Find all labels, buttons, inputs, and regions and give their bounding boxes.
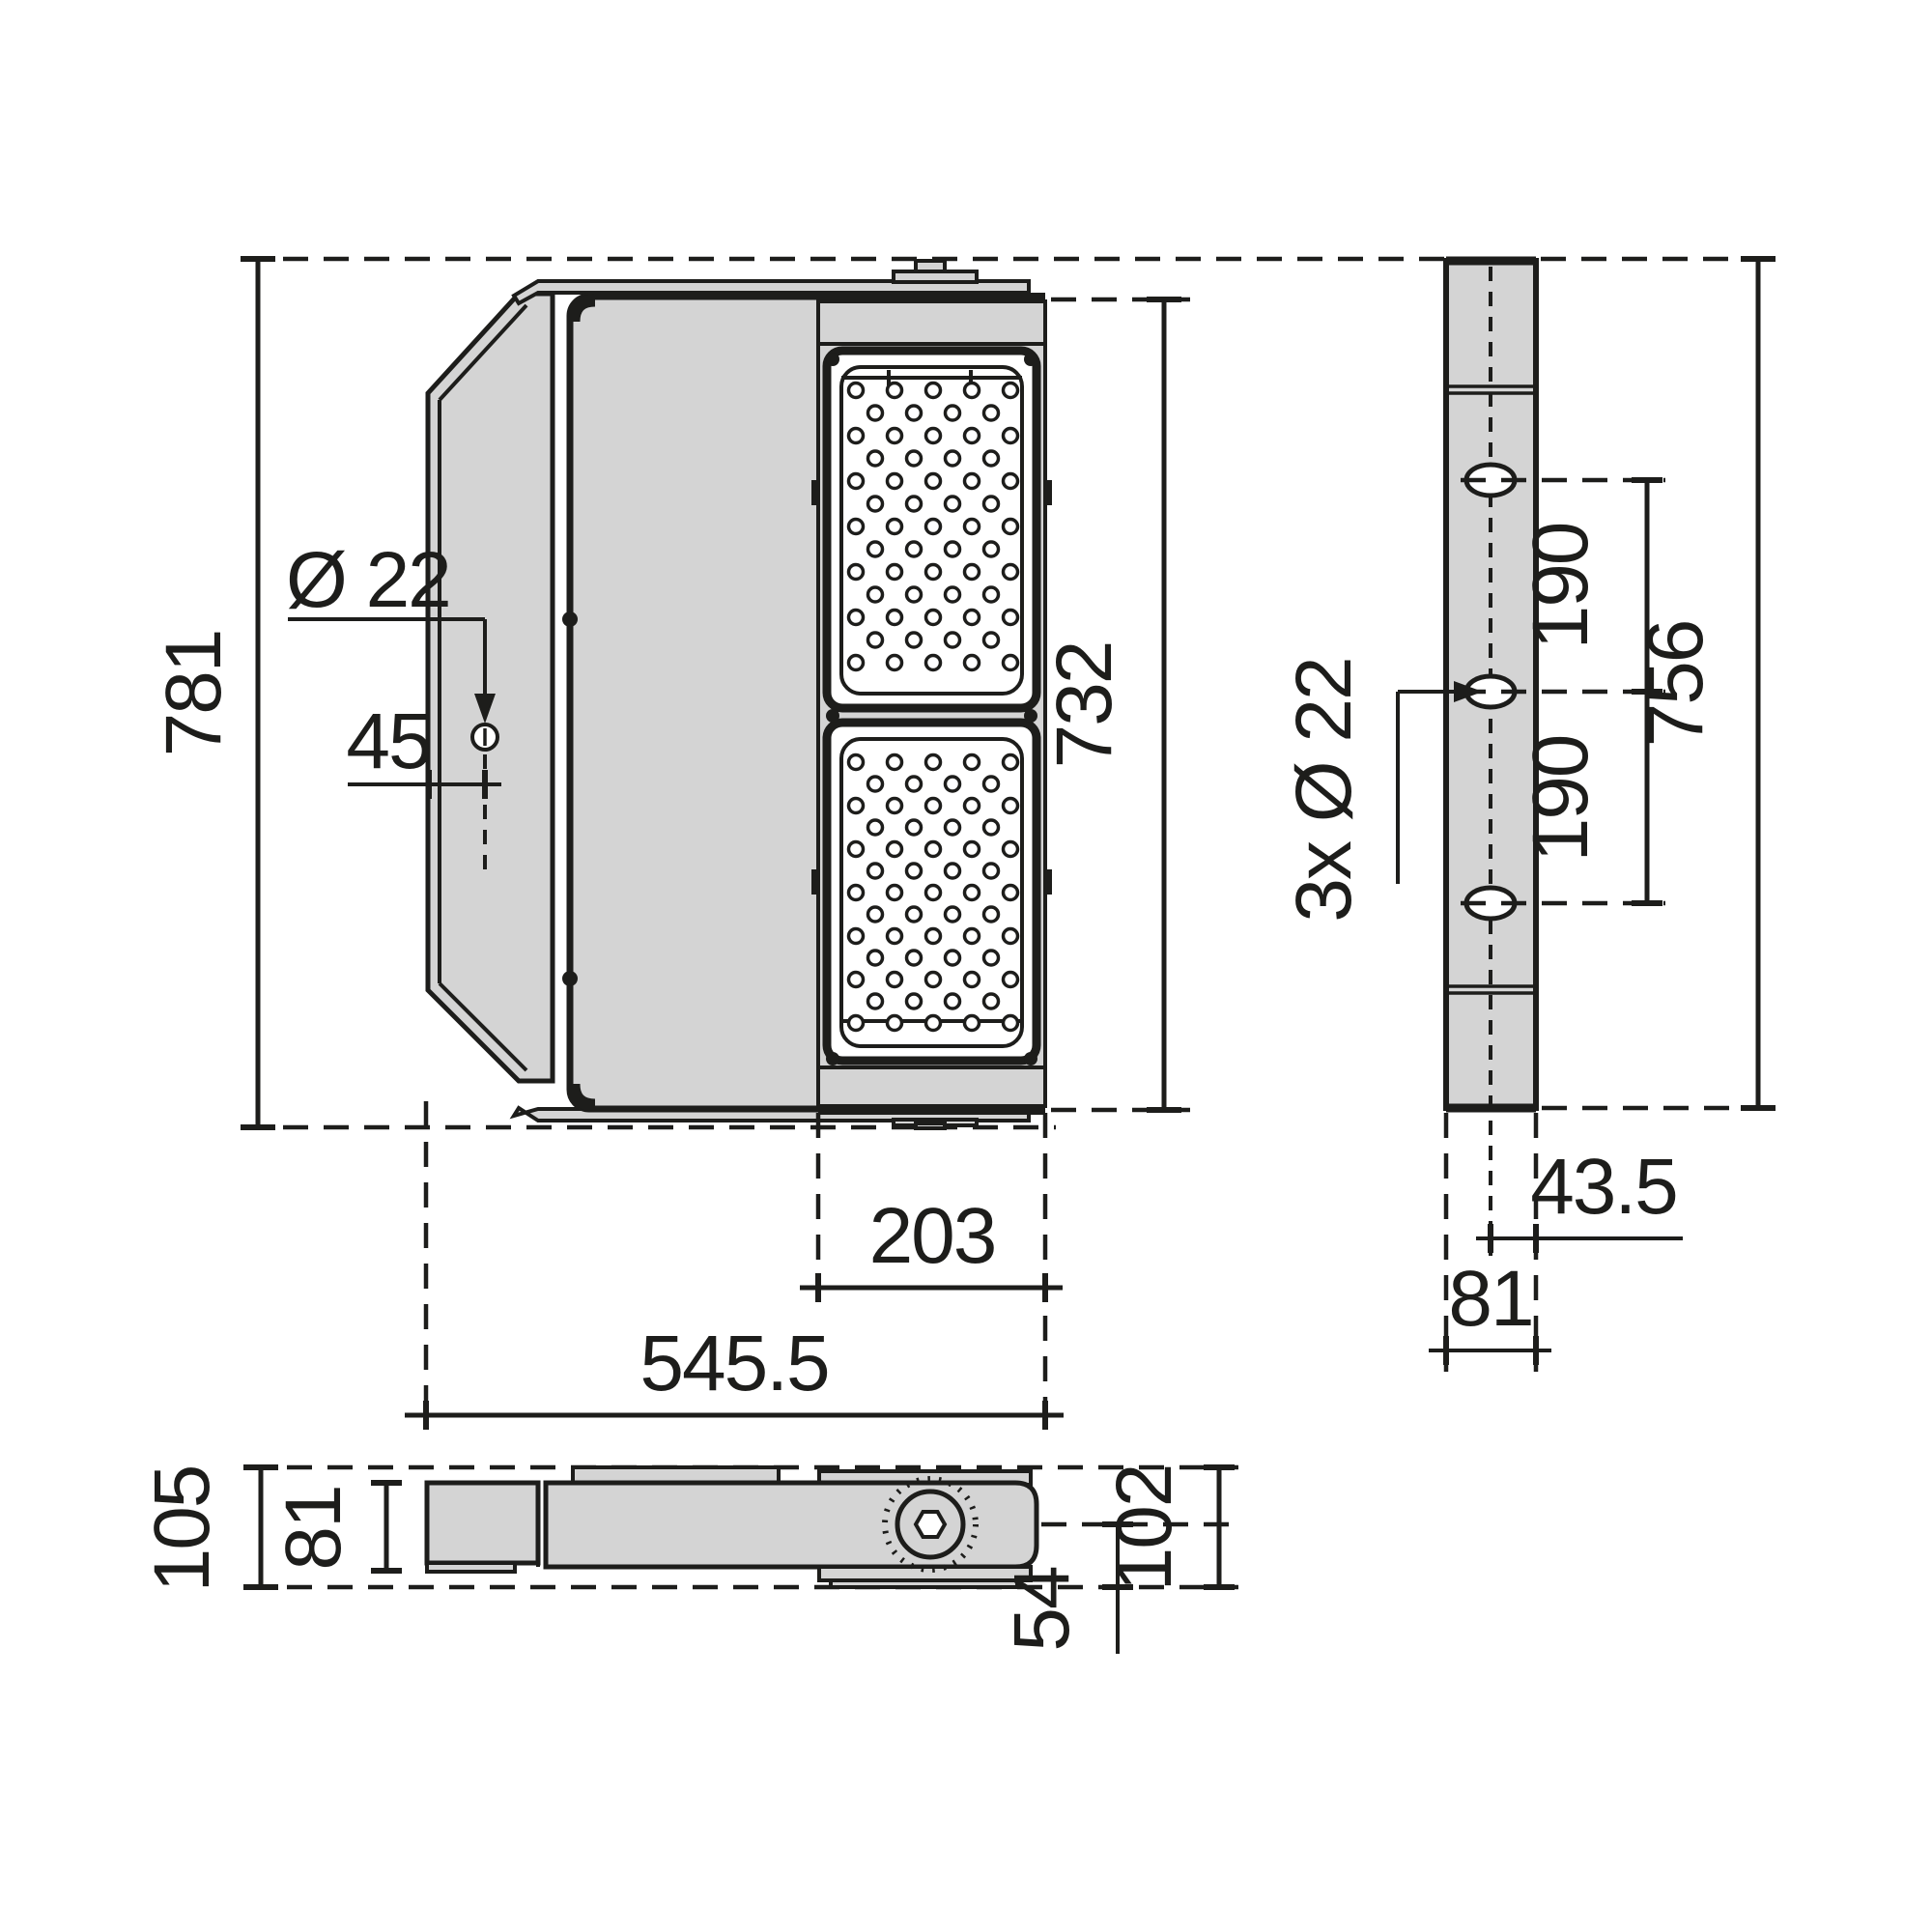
led-hole — [1004, 474, 1018, 489]
led-screw-bl — [826, 1052, 839, 1065]
led-hole — [907, 907, 922, 922]
led-hole — [965, 799, 980, 813]
frame-lug-l1 — [811, 480, 820, 505]
led-hole — [984, 907, 999, 922]
led-hole — [965, 842, 980, 857]
led-hole — [984, 994, 999, 1009]
led-hole — [984, 820, 999, 835]
led-hole — [849, 429, 864, 443]
led-hole — [849, 842, 864, 857]
led-hole — [888, 384, 902, 398]
led-hole — [849, 656, 864, 670]
led-hole — [1004, 1016, 1018, 1031]
led-hole — [868, 907, 883, 922]
led-hole — [907, 777, 922, 791]
led-hole — [946, 633, 960, 647]
drawing-page: 781 732 Ø 22 45 — [0, 0, 1932, 1932]
led-hole — [926, 429, 941, 443]
led-hole — [907, 864, 922, 878]
led-hole — [946, 587, 960, 602]
led-hole — [849, 755, 864, 770]
led-hole — [868, 951, 883, 965]
led-hole — [926, 474, 941, 489]
led-hole — [1004, 929, 1018, 944]
led-hole — [849, 474, 864, 489]
led-hole — [926, 886, 941, 900]
led-hole — [946, 907, 960, 922]
led-hole — [868, 542, 883, 556]
led-screw-tr — [1024, 353, 1037, 366]
led-hole — [868, 497, 883, 511]
led-hole — [907, 542, 922, 556]
led-hole — [926, 656, 941, 670]
dim-label-190-bottom: 190 — [1517, 736, 1605, 863]
led-hole — [907, 633, 922, 647]
top-tab-small — [916, 261, 945, 271]
led-hole — [965, 755, 980, 770]
led-hole — [849, 384, 864, 398]
led-hole — [984, 542, 999, 556]
panel-latch-left-lower — [562, 971, 578, 986]
led-hole — [888, 474, 902, 489]
led-hole — [907, 994, 922, 1009]
led-hole — [926, 929, 941, 944]
led-hole — [965, 474, 980, 489]
label-3x-hole-dia: 3x Ø 22 — [1280, 658, 1368, 922]
led-hole — [984, 451, 999, 466]
led-hole — [946, 497, 960, 511]
led-hole — [849, 799, 864, 813]
body-left-lip — [427, 1563, 515, 1572]
led-hole — [965, 929, 980, 944]
dim-label-81-top: 81 — [270, 1486, 357, 1570]
led-hole — [946, 777, 960, 791]
led-hole — [1004, 656, 1018, 670]
led-hole — [868, 777, 883, 791]
dim-label-203: 203 — [869, 1192, 996, 1280]
dim-label-102: 102 — [1100, 1465, 1188, 1592]
led-hole — [907, 497, 922, 511]
led-hole — [888, 799, 902, 813]
led-hole — [946, 542, 960, 556]
hinge-bottom-lip — [831, 1580, 1017, 1587]
led-hole — [984, 406, 999, 420]
technical-drawing: 781 732 Ø 22 45 — [0, 0, 1932, 1932]
led-hole — [888, 520, 902, 534]
led-hole — [907, 951, 922, 965]
led-hole — [888, 886, 902, 900]
led-hole — [926, 384, 941, 398]
dim-label-756: 756 — [1632, 621, 1719, 748]
led-hole — [965, 520, 980, 534]
led-hole — [1004, 565, 1018, 580]
dim-module-width: 203 — [800, 1113, 1063, 1430]
led-hole — [946, 994, 960, 1009]
led-hole — [907, 587, 922, 602]
dim-label-781: 781 — [150, 631, 238, 757]
led-hole — [888, 973, 902, 987]
led-hole — [984, 951, 999, 965]
label-hole-dia: Ø 22 — [286, 536, 450, 624]
led-hole — [984, 864, 999, 878]
led-hole — [965, 656, 980, 670]
led-hole — [888, 842, 902, 857]
dim-top-body-depth: 81 — [270, 1483, 402, 1571]
led-hole — [946, 864, 960, 878]
led-hole — [849, 929, 864, 944]
dim-label-81-side: 81 — [1448, 1255, 1532, 1343]
led-hole — [888, 755, 902, 770]
dim-side-bottom: 43.5 81 — [1429, 1113, 1683, 1372]
led-hole — [946, 951, 960, 965]
led-hole — [888, 565, 902, 580]
dim-side-height: 756 — [1542, 259, 1782, 1108]
led-hole — [849, 1016, 864, 1031]
led-hole — [965, 973, 980, 987]
led-hole — [1004, 611, 1018, 625]
led-hole — [965, 429, 980, 443]
led-hole — [926, 799, 941, 813]
dim-pivot-height: 102 — [1100, 1465, 1235, 1592]
dim-label-190-top: 190 — [1517, 524, 1605, 650]
dim-front-height: 781 — [150, 259, 275, 1127]
led-hole — [926, 755, 941, 770]
frame-lug-r1 — [1043, 480, 1052, 505]
led-hole — [888, 429, 902, 443]
led-hole — [888, 1016, 902, 1031]
hinge-hex-bolt — [916, 1512, 945, 1537]
led-hole — [926, 565, 941, 580]
led-hole — [888, 929, 902, 944]
dim-label-105: 105 — [138, 1466, 226, 1593]
led-hole — [849, 886, 864, 900]
dim-label-43-5: 43.5 — [1530, 1143, 1677, 1231]
led-hole — [849, 611, 864, 625]
led-hole — [1004, 520, 1018, 534]
led-hole — [984, 633, 999, 647]
led-hole — [965, 886, 980, 900]
led-hole — [984, 587, 999, 602]
led-hole — [1004, 429, 1018, 443]
led-hole — [1004, 842, 1018, 857]
led-hole — [849, 973, 864, 987]
dim-top-overall-depth: 105 — [138, 1466, 278, 1593]
led-screw-mr — [1024, 709, 1037, 723]
led-hole — [984, 777, 999, 791]
frame-lug-r2 — [1043, 869, 1052, 895]
led-hole — [888, 611, 902, 625]
led-hole — [1004, 799, 1018, 813]
led-hole — [965, 384, 980, 398]
led-hole — [926, 842, 941, 857]
top-view: 105 81 54 102 — [138, 1465, 1238, 1654]
led-hole — [1004, 886, 1018, 900]
led-hole — [926, 1016, 941, 1031]
led-hole — [907, 406, 922, 420]
led-hole — [926, 520, 941, 534]
led-hole — [868, 820, 883, 835]
led-hole — [868, 451, 883, 466]
led-hole — [868, 587, 883, 602]
dim-module-height: 732 — [1040, 299, 1190, 1110]
dim-label-545-5: 545.5 — [639, 1320, 828, 1407]
led-hole — [965, 565, 980, 580]
led-hole — [946, 406, 960, 420]
led-screw-tl — [826, 353, 839, 366]
led-hole — [1004, 973, 1018, 987]
led-screw-ml — [826, 709, 839, 723]
front-view: 781 732 Ø 22 45 — [150, 259, 1190, 1430]
led-hole — [907, 820, 922, 835]
led-hole — [965, 611, 980, 625]
led-hole — [868, 864, 883, 878]
dim-label-45: 45 — [346, 697, 430, 785]
led-hole — [1004, 755, 1018, 770]
led-hole — [907, 451, 922, 466]
led-hole — [868, 994, 883, 1009]
led-hole — [868, 633, 883, 647]
led-hole — [1004, 384, 1018, 398]
side-view: 3x Ø 22 190 190 756 43.5 — [1280, 259, 1782, 1372]
frame-lug-l2 — [811, 869, 820, 895]
led-hole — [849, 565, 864, 580]
led-hole — [946, 451, 960, 466]
panel-latch-left-upper — [562, 611, 578, 627]
dim-label-54: 54 — [998, 1567, 1086, 1652]
dim-label-732: 732 — [1040, 642, 1128, 769]
led-screw-br — [1024, 1052, 1037, 1065]
led-hole — [849, 520, 864, 534]
led-hole — [946, 820, 960, 835]
housing-back-wedge — [428, 294, 553, 1081]
bottom-tab-small — [916, 1123, 945, 1128]
led-hole — [984, 497, 999, 511]
led-hole — [926, 973, 941, 987]
led-hole — [926, 611, 941, 625]
led-hole — [868, 406, 883, 420]
led-hole — [888, 656, 902, 670]
led-hole — [965, 1016, 980, 1031]
body-left-block — [427, 1483, 538, 1563]
